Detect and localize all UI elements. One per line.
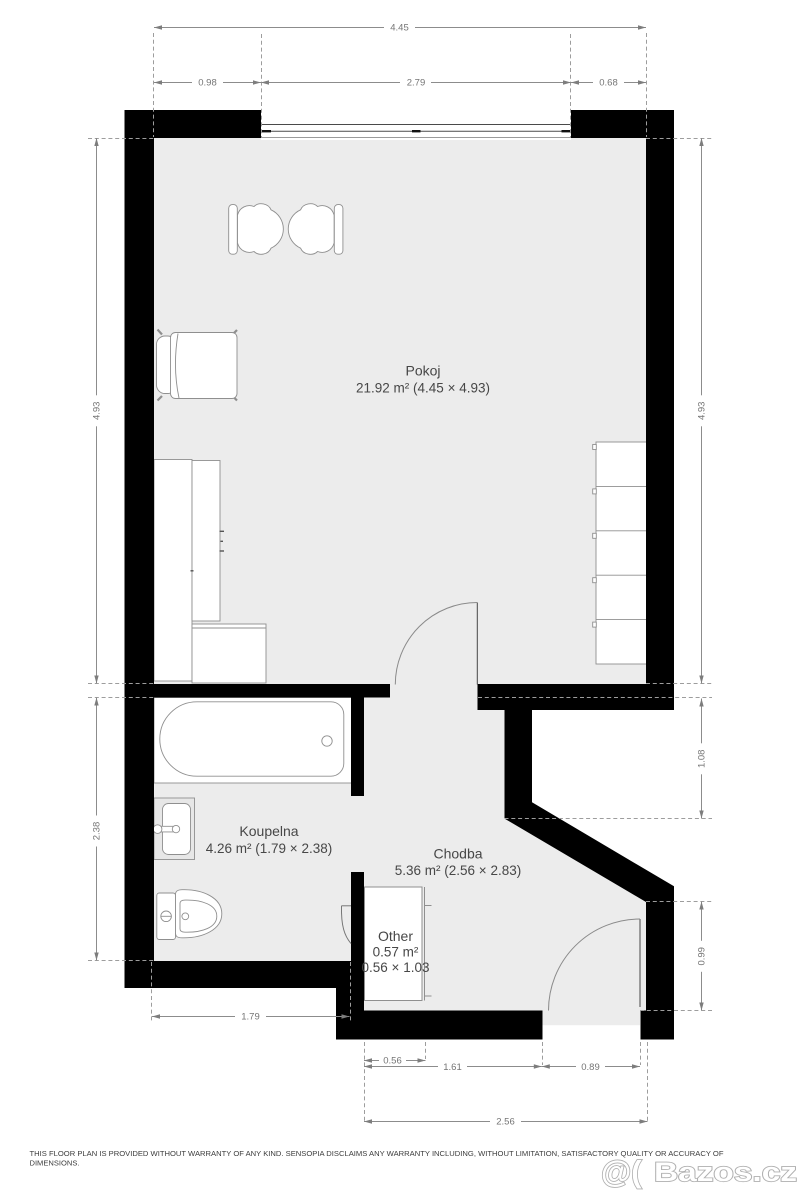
- svg-text:0.57 m²: 0.57 m²: [373, 945, 419, 960]
- svg-text:0.98: 0.98: [198, 78, 217, 89]
- svg-text:4.26 m² (1.79 × 2.38): 4.26 m² (1.79 × 2.38): [206, 841, 332, 856]
- svg-text:4.45: 4.45: [390, 23, 409, 34]
- svg-text:Koupelna: Koupelna: [239, 823, 298, 839]
- svg-text:0.68: 0.68: [599, 78, 618, 89]
- svg-text:21.92 m² (4.45 × 4.93): 21.92 m² (4.45 × 4.93): [356, 381, 490, 396]
- svg-text:Other: Other: [378, 928, 413, 944]
- svg-text:Pokoj: Pokoj: [405, 363, 440, 379]
- svg-text:2.79: 2.79: [407, 78, 426, 89]
- svg-text:2.38: 2.38: [92, 822, 103, 841]
- svg-text:Bazos.cz: Bazos.cz: [654, 1157, 797, 1187]
- svg-text:@(: @(: [601, 1154, 642, 1189]
- svg-text:0.56: 0.56: [383, 1055, 402, 1066]
- svg-text:Chodba: Chodba: [433, 846, 482, 862]
- svg-text:DIMENSIONS.: DIMENSIONS.: [30, 1158, 80, 1167]
- svg-text:4.93: 4.93: [697, 402, 708, 421]
- svg-text:2.56: 2.56: [496, 1117, 515, 1128]
- svg-text:5.36 m² (2.56 × 2.83): 5.36 m² (2.56 × 2.83): [395, 863, 521, 878]
- svg-text:4.93: 4.93: [92, 402, 103, 421]
- svg-text:0.99: 0.99: [697, 947, 708, 966]
- svg-text:0.56 × 1.03: 0.56 × 1.03: [362, 960, 430, 975]
- svg-text:1.79: 1.79: [241, 1012, 260, 1023]
- svg-text:0.89: 0.89: [581, 1062, 600, 1073]
- svg-text:1.08: 1.08: [697, 750, 708, 769]
- svg-text:1.61: 1.61: [443, 1062, 462, 1073]
